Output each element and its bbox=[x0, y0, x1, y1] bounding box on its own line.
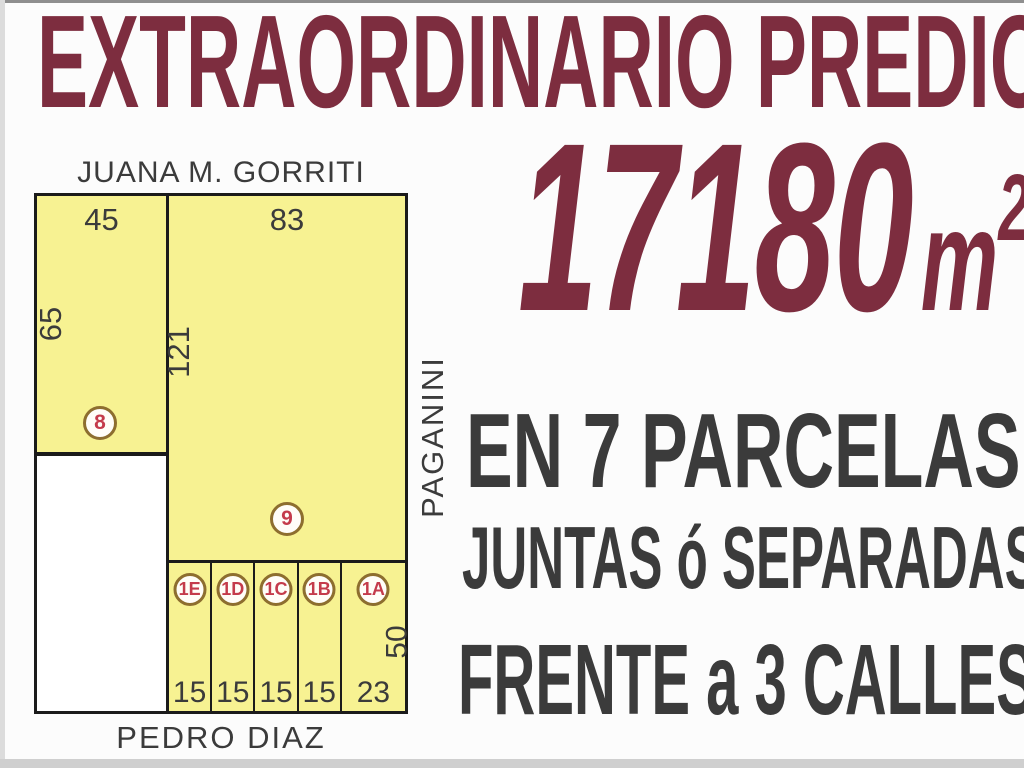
parcel-1D-badge: 1D bbox=[216, 573, 249, 606]
parcel-1A-front-dimension: 23 bbox=[342, 676, 405, 710]
parcel-1A-badge: 1A bbox=[357, 573, 390, 606]
parcel-1B: 1B15 bbox=[297, 563, 340, 711]
parcel-1D: 1D15 bbox=[210, 563, 253, 711]
street-name-top: JUANA M. GORRITI bbox=[34, 156, 408, 190]
photo-edge-left bbox=[0, 0, 5, 768]
parcel-9-depth-dimension: 121 bbox=[161, 326, 197, 378]
parcel-9-front-dimension: 83 bbox=[169, 202, 405, 238]
total-area-value: 17180 bbox=[518, 93, 912, 361]
parcel-1D-front-dimension: 15 bbox=[212, 676, 253, 710]
photo-edge-bottom bbox=[0, 759, 1024, 768]
parcel-1E: 1E15 bbox=[169, 563, 210, 711]
parcel-9: 83 121 9 bbox=[169, 196, 405, 563]
small-parcels-row: 1E151D151C151B151A2350 bbox=[169, 563, 405, 711]
parcel-8: 45 65 8 bbox=[37, 196, 169, 456]
excluded-lot bbox=[37, 456, 169, 711]
parcel-1E-front-dimension: 15 bbox=[169, 676, 210, 710]
claim-together-or-separate: JUNTAS ó SEPARADAS bbox=[462, 514, 1024, 602]
parcel-8-front-dimension: 45 bbox=[37, 202, 166, 238]
real-estate-poster: EXTRAORDINARIO PREDIO JUANA M. GORRITI P… bbox=[0, 0, 1024, 768]
claim-parcels: EN 7 PARCELAS bbox=[466, 398, 1021, 504]
total-area-unit: m bbox=[921, 179, 998, 341]
parcel-8-badge: 8 bbox=[83, 406, 117, 440]
parcel-1C-badge: 1C bbox=[260, 573, 293, 606]
parcel-1B-front-dimension: 15 bbox=[299, 676, 340, 710]
parcel-1A-depth-dimension: 50 bbox=[380, 625, 414, 658]
street-name-bottom: PEDRO DIAZ bbox=[34, 720, 408, 756]
parcel-8-depth-dimension: 65 bbox=[33, 307, 69, 341]
parcel-1A: 1A2350 bbox=[340, 563, 405, 711]
street-name-right: PAGANINI bbox=[415, 356, 451, 518]
plot-diagram: 45 65 8 83 121 9 1E151D151C151B151A2350 bbox=[34, 193, 408, 714]
parcel-9-badge: 9 bbox=[270, 502, 304, 536]
parcel-1C: 1C15 bbox=[253, 563, 296, 711]
parcel-1E-badge: 1E bbox=[173, 573, 206, 606]
total-area: 17180m2 bbox=[518, 107, 1024, 347]
claim-frontage: FRENTE a 3 CALLES bbox=[458, 630, 1024, 730]
parcel-1C-front-dimension: 15 bbox=[255, 676, 296, 710]
parcel-1B-badge: 1B bbox=[303, 573, 336, 606]
total-area-exponent: 2 bbox=[998, 155, 1024, 261]
